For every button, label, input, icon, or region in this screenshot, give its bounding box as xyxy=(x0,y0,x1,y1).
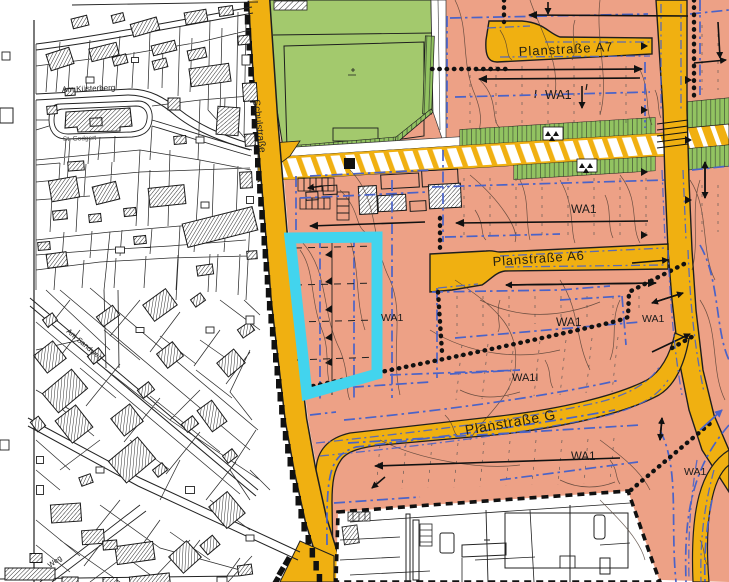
svg-text:WA1: WA1 xyxy=(545,88,572,102)
svg-text:WA1: WA1 xyxy=(684,466,707,478)
svg-text:WA1I: WA1I xyxy=(512,372,539,384)
svg-text:WA1: WA1 xyxy=(381,312,404,324)
svg-text:WA1: WA1 xyxy=(571,451,596,463)
svg-text:Am Küsterberg: Am Küsterberg xyxy=(62,83,116,94)
svg-text:WA1: WA1 xyxy=(556,315,582,329)
svg-text:St. Godgert: St. Godgert xyxy=(63,135,97,143)
svg-text:WA1: WA1 xyxy=(642,313,665,325)
svg-text:WA1: WA1 xyxy=(571,202,597,216)
